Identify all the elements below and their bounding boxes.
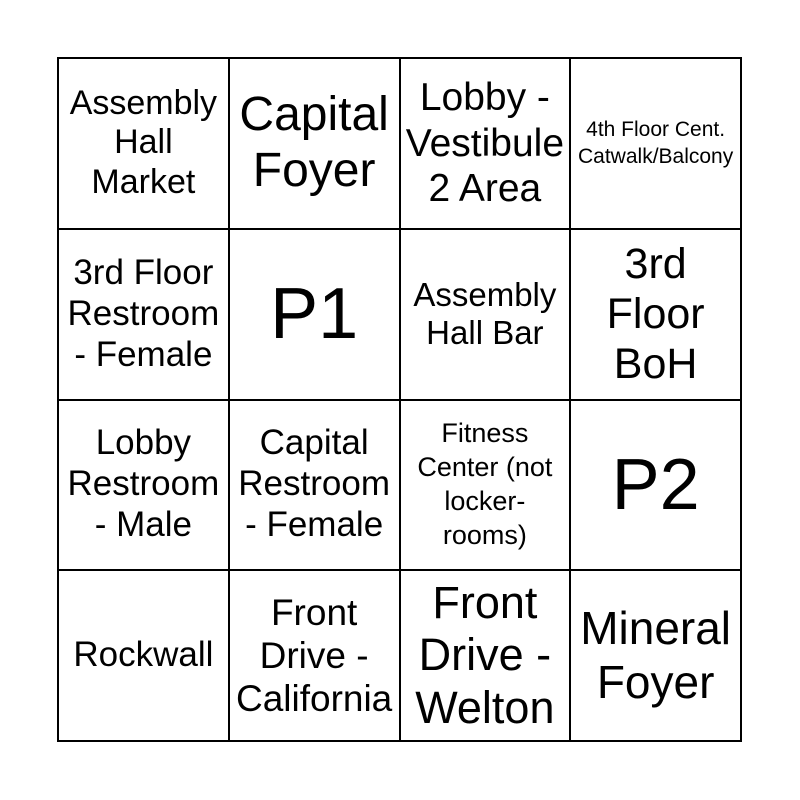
- bingo-cell-capital-restroom-female[interactable]: Capital Restroom - Female: [229, 400, 400, 571]
- bingo-cell-capital-foyer[interactable]: Capital Foyer: [229, 58, 400, 229]
- bingo-card: Assembly Hall Market Capital Foyer Lobby…: [0, 0, 800, 800]
- bingo-row-1: Assembly Hall Market Capital Foyer Lobby…: [58, 58, 741, 229]
- bingo-cell-3rd-floor-boh[interactable]: 3rd Floor BoH: [570, 229, 741, 400]
- bingo-cell-label: Mineral Foyer: [580, 602, 731, 710]
- bingo-cell-label: Front Drive - Welton: [415, 577, 554, 735]
- bingo-cell-label: 3rd Floor BoH: [607, 239, 705, 390]
- bingo-cell-label: 4th Floor Cent. Catwalk/Balcony: [578, 116, 733, 171]
- bingo-cell-assembly-hall-bar[interactable]: Assembly Hall Bar: [400, 229, 571, 400]
- bingo-cell-front-drive-welton[interactable]: Front Drive - Welton: [400, 570, 571, 741]
- bingo-row-4: Rockwall Front Drive - California Front …: [58, 570, 741, 741]
- bingo-cell-4th-floor-cent-catwalk-balcony[interactable]: 4th Floor Cent. Catwalk/Balcony: [570, 58, 741, 229]
- bingo-cell-label: Assembly Hall Bar: [413, 276, 556, 353]
- bingo-cell-label: Fitness Center (not locker- rooms): [417, 417, 552, 552]
- bingo-cell-label: 3rd Floor Restroom - Female: [68, 253, 220, 376]
- bingo-cell-label: Lobby - Vestibule 2 Area: [406, 75, 564, 212]
- bingo-row-2: 3rd Floor Restroom - Female P1 Assembly …: [58, 229, 741, 400]
- bingo-cell-rockwall[interactable]: Rockwall: [58, 570, 229, 741]
- bingo-cell-p2[interactable]: P2: [570, 400, 741, 571]
- bingo-row-3: Lobby Restroom - Male Capital Restroom -…: [58, 400, 741, 571]
- bingo-grid-body: Assembly Hall Market Capital Foyer Lobby…: [58, 58, 741, 741]
- bingo-cell-label: Capital Restroom - Female: [238, 423, 390, 546]
- bingo-cell-mineral-foyer[interactable]: Mineral Foyer: [570, 570, 741, 741]
- bingo-cell-fitness-center[interactable]: Fitness Center (not locker- rooms): [400, 400, 571, 571]
- bingo-cell-lobby-vestibule-2-area[interactable]: Lobby - Vestibule 2 Area: [400, 58, 571, 229]
- bingo-cell-label: Front Drive - California: [236, 591, 392, 721]
- bingo-cell-3rd-floor-restroom-female[interactable]: 3rd Floor Restroom - Female: [58, 229, 229, 400]
- bingo-cell-label: Rockwall: [73, 635, 213, 676]
- bingo-grid: Assembly Hall Market Capital Foyer Lobby…: [57, 57, 742, 742]
- bingo-cell-assembly-hall-market[interactable]: Assembly Hall Market: [58, 58, 229, 229]
- bingo-cell-label: P1: [270, 278, 358, 350]
- bingo-cell-label: Assembly Hall Market: [70, 84, 217, 203]
- bingo-cell-label: Lobby Restroom - Male: [68, 423, 220, 546]
- bingo-cell-front-drive-california[interactable]: Front Drive - California: [229, 570, 400, 741]
- bingo-cell-label: Capital Foyer: [239, 87, 388, 199]
- bingo-cell-lobby-restroom-male[interactable]: Lobby Restroom - Male: [58, 400, 229, 571]
- bingo-cell-label: P2: [612, 449, 700, 521]
- bingo-cell-p1[interactable]: P1: [229, 229, 400, 400]
